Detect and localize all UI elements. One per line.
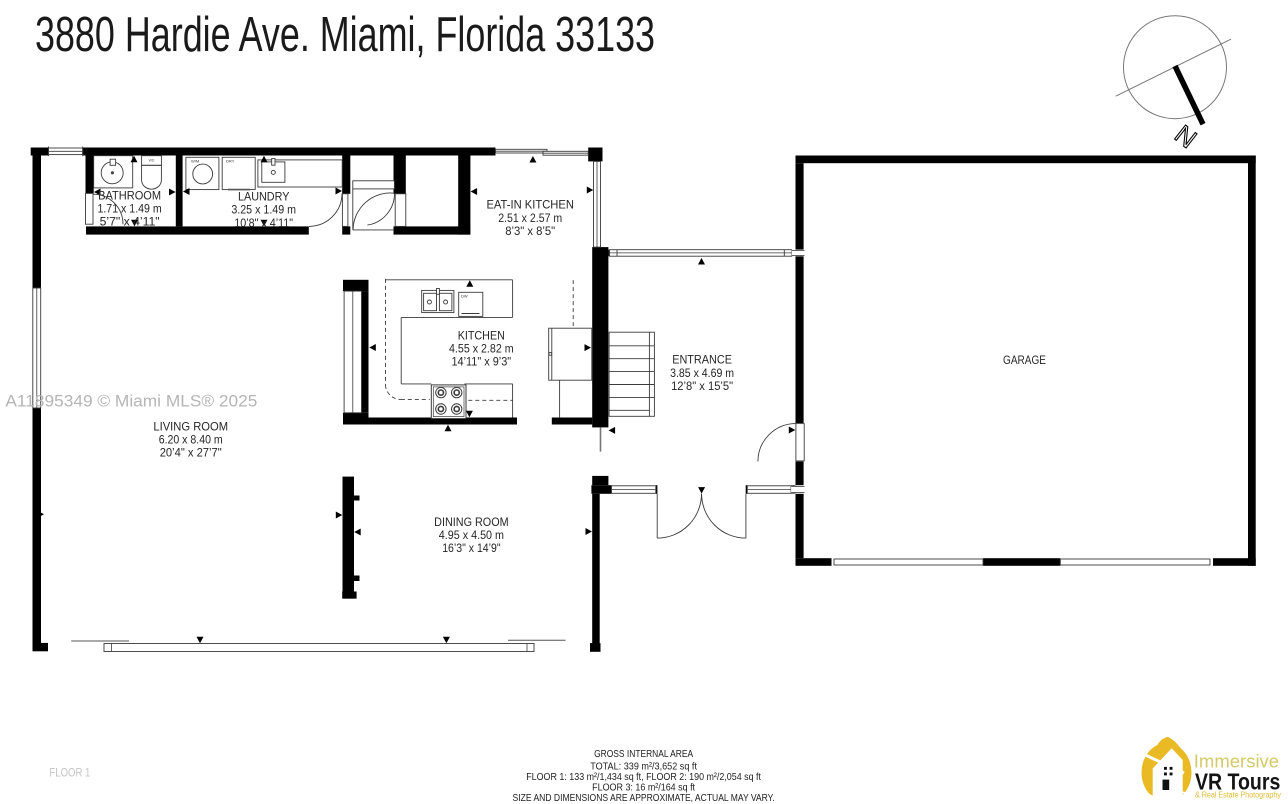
svg-text:16’3" x 14’9": 16’3" x 14’9" bbox=[442, 541, 500, 555]
svg-text:12’8" x 15’5": 12’8" x 15’5" bbox=[671, 379, 733, 393]
svg-text:& Real Estate Photography: & Real Estate Photography bbox=[1195, 790, 1281, 799]
svg-text:DW: DW bbox=[461, 294, 468, 299]
svg-text:WD: WD bbox=[149, 159, 155, 163]
svg-text:GROSS INTERNAL AREA: GROSS INTERNAL AREA bbox=[594, 748, 693, 760]
svg-text:3880 Hardie Ave. Miami, Florid: 3880 Hardie Ave. Miami, Florida 33133 bbox=[35, 8, 655, 62]
svg-text:10’8" x 4’11": 10’8" x 4’11" bbox=[234, 216, 293, 230]
svg-text:N: N bbox=[1169, 119, 1202, 154]
svg-text:FLOOR 1: FLOOR 1 bbox=[49, 766, 90, 780]
svg-text:A11895349 © Miami MLS® 2025: A11895349 © Miami MLS® 2025 bbox=[5, 392, 257, 411]
svg-text:4.55 x 2.82 m: 4.55 x 2.82 m bbox=[449, 342, 514, 356]
svg-text:DINING ROOM: DINING ROOM bbox=[434, 515, 509, 529]
svg-text:KITCHEN: KITCHEN bbox=[458, 328, 505, 342]
svg-text:2.51 x 2.57 m: 2.51 x 2.57 m bbox=[498, 211, 562, 225]
svg-text:LIVING ROOM: LIVING ROOM bbox=[153, 420, 228, 434]
svg-text:3.85 x 4.69 m: 3.85 x 4.69 m bbox=[670, 366, 734, 380]
svg-text:14’11" x 9’3": 14’11" x 9’3" bbox=[451, 355, 511, 369]
svg-text:GARAGE: GARAGE bbox=[1003, 353, 1046, 367]
svg-text:W/M: W/M bbox=[191, 159, 199, 164]
svg-text:8’3" x 8’5": 8’3" x 8’5" bbox=[505, 224, 555, 238]
svg-text:4.95 x 4.50 m: 4.95 x 4.50 m bbox=[439, 528, 504, 542]
svg-text:3.25 x 1.49 m: 3.25 x 1.49 m bbox=[231, 203, 296, 217]
svg-text:LAUNDRY: LAUNDRY bbox=[238, 190, 290, 204]
svg-text:SIZE AND DIMENSIONS ARE APPROX: SIZE AND DIMENSIONS ARE APPROXIMATE, ACT… bbox=[513, 792, 775, 804]
svg-text:20’4" x 27’7": 20’4" x 27’7" bbox=[160, 446, 222, 460]
svg-text:BATHROOM: BATHROOM bbox=[98, 188, 161, 202]
svg-text:DRY: DRY bbox=[226, 159, 235, 164]
svg-text:1.71 x 1.49 m: 1.71 x 1.49 m bbox=[97, 202, 161, 216]
svg-text:EAT-IN KITCHEN: EAT-IN KITCHEN bbox=[486, 198, 574, 212]
svg-text:ENTRANCE: ENTRANCE bbox=[672, 353, 732, 367]
svg-text:6.20 x 8.40 m: 6.20 x 8.40 m bbox=[159, 433, 223, 447]
svg-text:5’7" x 4’11": 5’7" x 4’11" bbox=[100, 215, 160, 229]
